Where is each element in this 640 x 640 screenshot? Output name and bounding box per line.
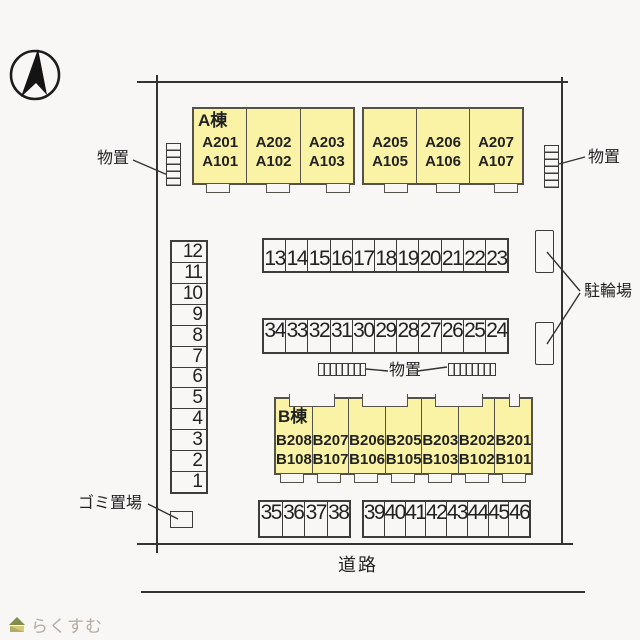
parking-space-22: 22 (464, 240, 486, 271)
parking-space-17: 17 (353, 240, 375, 271)
parking-space-45: 45 (489, 502, 510, 536)
parking-top-row: 1314151617181920212223 (262, 238, 509, 273)
roof-notch (362, 394, 408, 407)
parking-space-16: 16 (331, 240, 353, 271)
storage-shed-middle-right (448, 363, 496, 376)
parking-space-30: 30 (353, 320, 375, 352)
entrance-step (465, 473, 489, 483)
entrance-step (266, 183, 290, 193)
entrance-step (326, 183, 350, 193)
parking-space-29: 29 (375, 320, 397, 352)
parking-space-4: 4 (172, 409, 206, 430)
entrance-step (206, 183, 230, 193)
parking-space-24: 24 (486, 320, 507, 352)
unit-A203: A203A103 (301, 109, 353, 183)
rakusumu-logo: らくすむ (8, 612, 103, 637)
parking-space-35: 35 (260, 502, 283, 536)
parking-space-20: 20 (419, 240, 441, 271)
parking-space-38: 38 (328, 502, 350, 536)
parking-space-6: 6 (172, 368, 206, 389)
unit-A207: A207A107 (470, 109, 522, 183)
parking-space-11: 11 (172, 263, 206, 284)
parking-space-37: 37 (305, 502, 328, 536)
parking-left-column: 121110987654321 (170, 240, 208, 494)
building-b-name: B棟 (278, 408, 307, 425)
parking-space-41: 41 (406, 502, 427, 536)
unit-A202: A202A102 (247, 109, 300, 183)
parking-space-34: 34 (264, 320, 286, 352)
storage-left-label: 物置 (97, 150, 129, 168)
storage-shed-middle-left (318, 363, 366, 376)
parking-space-9: 9 (172, 305, 206, 326)
parking-space-40: 40 (385, 502, 406, 536)
parking-space-43: 43 (447, 502, 468, 536)
roof-notch (509, 394, 520, 407)
parking-space-44: 44 (468, 502, 489, 536)
parking-space-28: 28 (397, 320, 419, 352)
parking-space-14: 14 (286, 240, 308, 271)
parking-space-21: 21 (442, 240, 464, 271)
parking-space-3: 3 (172, 430, 206, 451)
parking-space-33: 33 (286, 320, 308, 352)
parking-space-23: 23 (486, 240, 507, 271)
parking-middle-row: 3433323130292827262524 (262, 318, 509, 354)
entrance-step (428, 473, 452, 483)
bicycle-parking-label: 駐輪場 (584, 283, 632, 301)
building-a-name: A棟 (198, 112, 227, 129)
parking-space-31: 31 (331, 320, 353, 352)
parking-space-42: 42 (426, 502, 447, 536)
parking-bottom-left-row: 35363738 (258, 500, 351, 538)
parking-space-1: 1 (172, 472, 206, 492)
garbage-box (170, 511, 193, 528)
roof-notch (435, 394, 483, 407)
parking-space-2: 2 (172, 451, 206, 472)
unit-B202: B202B102 (459, 399, 496, 473)
building-b: B208B108B207B107B206B106B205B105B203B103… (274, 397, 533, 475)
unit-B201: B201B101 (495, 399, 531, 473)
entrance-step (391, 473, 415, 483)
parking-space-19: 19 (397, 240, 419, 271)
bicycle-parking-box-2 (535, 322, 554, 365)
parking-space-36: 36 (283, 502, 306, 536)
parking-space-10: 10 (172, 284, 206, 305)
logo-text: らくすむ (31, 612, 103, 637)
unit-A205: A205A105 (364, 109, 417, 183)
storage-middle-label: 物置 (389, 362, 421, 380)
building-a-block-2: A205A105A206A106A207A107 (362, 107, 524, 185)
entrance-step (502, 473, 526, 483)
storage-right-label: 物置 (588, 149, 620, 167)
storage-shed-left (166, 143, 181, 186)
parking-bottom-right-row: 3940414243444546 (362, 500, 531, 538)
entrance-step (280, 473, 304, 483)
parking-space-27: 27 (419, 320, 441, 352)
north-arrow-icon (11, 49, 59, 99)
storage-shed-right (544, 145, 559, 188)
parking-space-15: 15 (308, 240, 330, 271)
unit-A206: A206A106 (417, 109, 470, 183)
entrance-step (494, 183, 518, 193)
road-label: 道路 (338, 556, 378, 576)
entrance-step (354, 473, 378, 483)
parking-space-8: 8 (172, 326, 206, 347)
parking-space-12: 12 (172, 242, 206, 263)
unit-B203: B203B103 (422, 399, 459, 473)
parking-space-46: 46 (509, 502, 529, 536)
entrance-step (317, 473, 341, 483)
parking-space-39: 39 (364, 502, 385, 536)
garbage-area-label: ゴミ置場 (78, 495, 142, 513)
parking-space-26: 26 (442, 320, 464, 352)
parking-space-25: 25 (464, 320, 486, 352)
parking-space-32: 32 (308, 320, 330, 352)
site-plan: A201A101A202A102A203A103 A205A105A206A10… (0, 0, 640, 640)
parking-space-13: 13 (264, 240, 286, 271)
unit-B206: B206B106 (349, 399, 386, 473)
entrance-step (384, 183, 408, 193)
unit-B205: B205B105 (386, 399, 423, 473)
entrance-step (436, 183, 460, 193)
bicycle-parking-box-1 (535, 230, 554, 273)
parking-space-18: 18 (375, 240, 397, 271)
unit-B207: B207B107 (313, 399, 350, 473)
parking-space-7: 7 (172, 347, 206, 368)
logo-house-icon (8, 616, 26, 634)
parking-space-5: 5 (172, 388, 206, 409)
roof-notch (289, 394, 335, 407)
